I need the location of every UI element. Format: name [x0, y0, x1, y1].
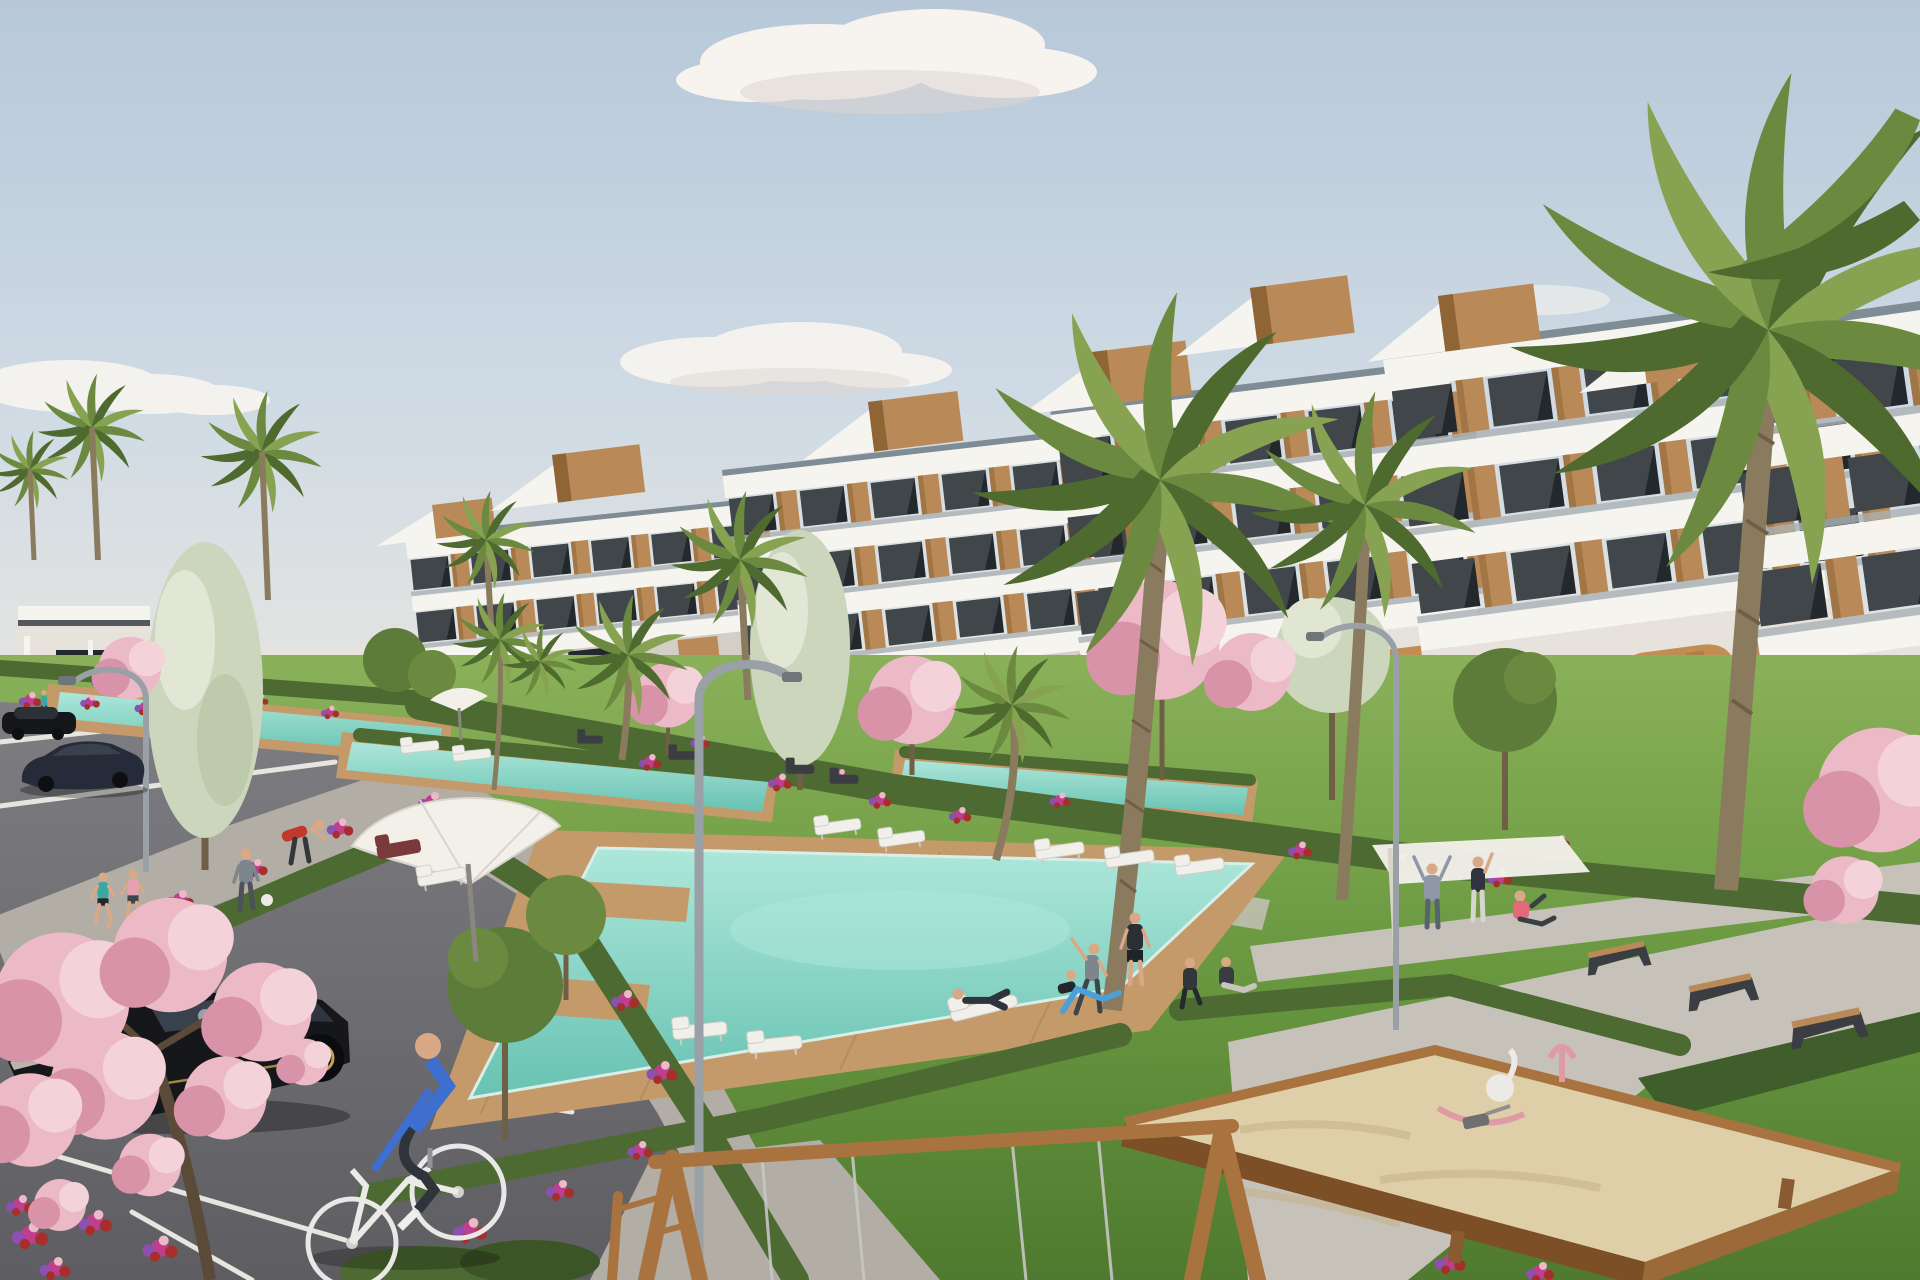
pavilion-roof	[18, 606, 150, 622]
football	[261, 894, 273, 906]
resort-render-canvas	[0, 0, 1920, 1280]
rendered-image	[0, 0, 1920, 1280]
